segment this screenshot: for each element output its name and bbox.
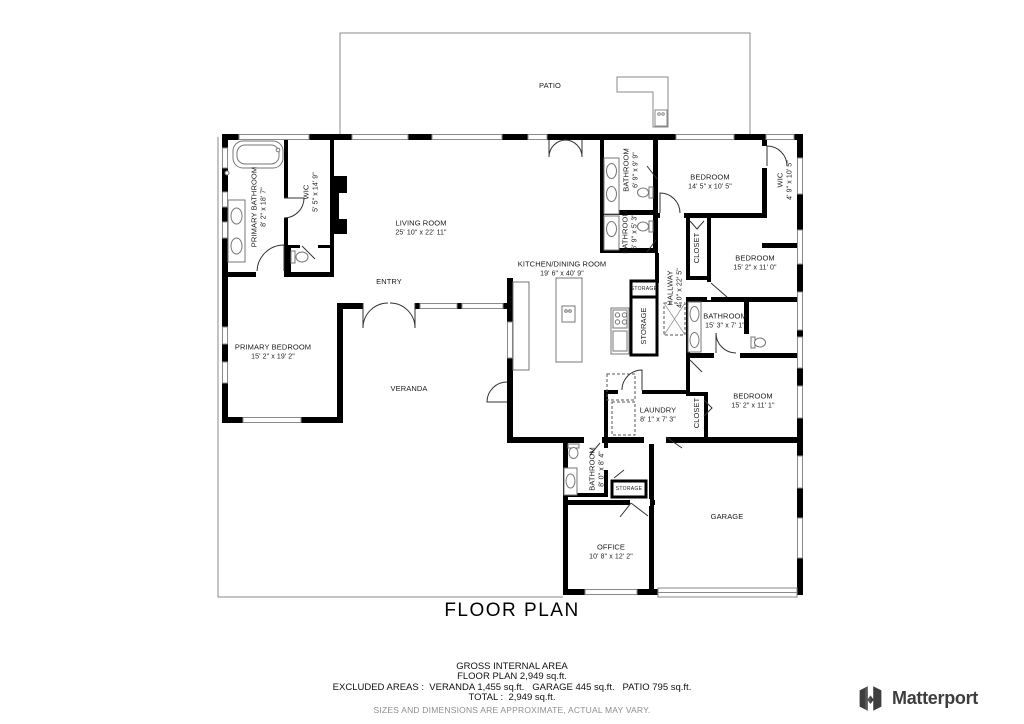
shower-head-icon	[225, 171, 229, 175]
sink	[607, 187, 617, 202]
room-label-living-room: LIVING ROOM 25' 10" x 22' 11"	[395, 219, 446, 238]
room-label-primary-bathroom: PRIMARY BATHROOM 8' 2" x 18' 7"	[250, 167, 269, 247]
room-label-bedroom-ne: BEDROOM 14' 5" x 10' 5"	[688, 173, 732, 192]
sink	[231, 208, 242, 224]
sink	[231, 238, 242, 254]
matterport-logo-icon	[856, 684, 885, 713]
outdoor-outlines	[218, 33, 750, 597]
sink	[566, 474, 575, 488]
fireplace-opening	[339, 193, 347, 219]
room-label-closet-ne: CLOSET	[692, 233, 702, 264]
toilet-tank	[649, 221, 653, 232]
bedroom-ne-door	[660, 193, 680, 213]
garage-door	[658, 588, 797, 597]
room-label-laundry: LAUNDRY 8' 1" x 7' 3"	[640, 406, 676, 425]
bathroom-e-door	[716, 333, 736, 353]
room-label-bathroom-top2: BATHROOM 6' 9" x 5' 3"	[621, 210, 640, 254]
dryer-outline	[612, 402, 635, 435]
matterport-logo-text: Matterport	[892, 688, 978, 709]
oven	[613, 331, 627, 351]
room-label-wic-primary: WIC 5' 5" x 14' 9"	[302, 172, 321, 212]
room-label-bathroom-top1: BATHROOM 6' 9" x 9' 9"	[622, 148, 641, 192]
room-label-storage: STORAGE	[639, 307, 649, 344]
laundry-door	[622, 370, 642, 390]
sink	[607, 164, 617, 179]
room-label-storage-small: STORAGE	[631, 286, 657, 293]
room-label-entry: ENTRY	[376, 277, 402, 287]
bedroom-se-door	[690, 360, 702, 372]
closet-ne-door	[690, 221, 704, 229]
toilet	[755, 338, 766, 347]
primary-bath-door	[257, 245, 284, 271]
washer-outline	[607, 374, 635, 400]
patio-door-right	[565, 140, 582, 157]
room-label-primary-bedroom: PRIMARY BEDROOM 15' 2" x 19' 2"	[235, 343, 311, 362]
toilet-tank	[649, 187, 653, 198]
room-label-bathroom-e: BATHROOM 15' 3" x 7' 1"	[703, 312, 747, 331]
room-label-storage-s: STORAGE	[616, 486, 642, 493]
bedroom-e-door	[711, 283, 727, 297]
room-label-patio: PATIO	[539, 81, 561, 91]
room-label-bedroom-se: BEDROOM 15' 2" x 11' 1"	[731, 392, 774, 411]
room-label-office: OFFICE 10' 8" x 12' 2"	[589, 543, 633, 562]
toilet	[296, 252, 308, 262]
kitchen-veranda-door	[487, 382, 507, 402]
storage-s-door	[614, 470, 624, 478]
room-label-bedroom-e: BEDROOM 15' 2" x 11' 0"	[733, 254, 776, 273]
page-title: FLOOR PLAN	[444, 600, 579, 622]
toilet-tank	[291, 251, 295, 263]
room-label-bathroom-s: BATHROOM 8' 0" x 8' 4"	[588, 447, 607, 491]
sink	[690, 307, 699, 322]
sink	[607, 222, 617, 237]
island-sink	[562, 306, 575, 322]
room-label-hallway: HALLWAY 4' 0" x 22' 5"	[666, 268, 685, 308]
kitchen-counter	[513, 282, 529, 370]
room-label-wic-ne: WIC 4' 9" x 10' 5"	[776, 160, 795, 200]
room-label-kitchen-dining: KITCHEN/DINING ROOM 19' 6" x 40' 9"	[518, 260, 607, 279]
patio-grill	[655, 110, 667, 126]
floor-plan-page: PATIO PRIMARY BATHROOM 8' 2" x 18' 7" WI…	[0, 0, 1024, 724]
room-label-veranda: VERANDA	[391, 384, 428, 394]
patio-door-left	[549, 140, 566, 157]
matterport-logo: Matterport	[856, 684, 978, 713]
sink	[690, 333, 699, 348]
room-label-garage: GARAGE	[711, 512, 744, 522]
toilet	[569, 448, 578, 459]
room-label-closet-se: CLOSET	[692, 398, 702, 429]
